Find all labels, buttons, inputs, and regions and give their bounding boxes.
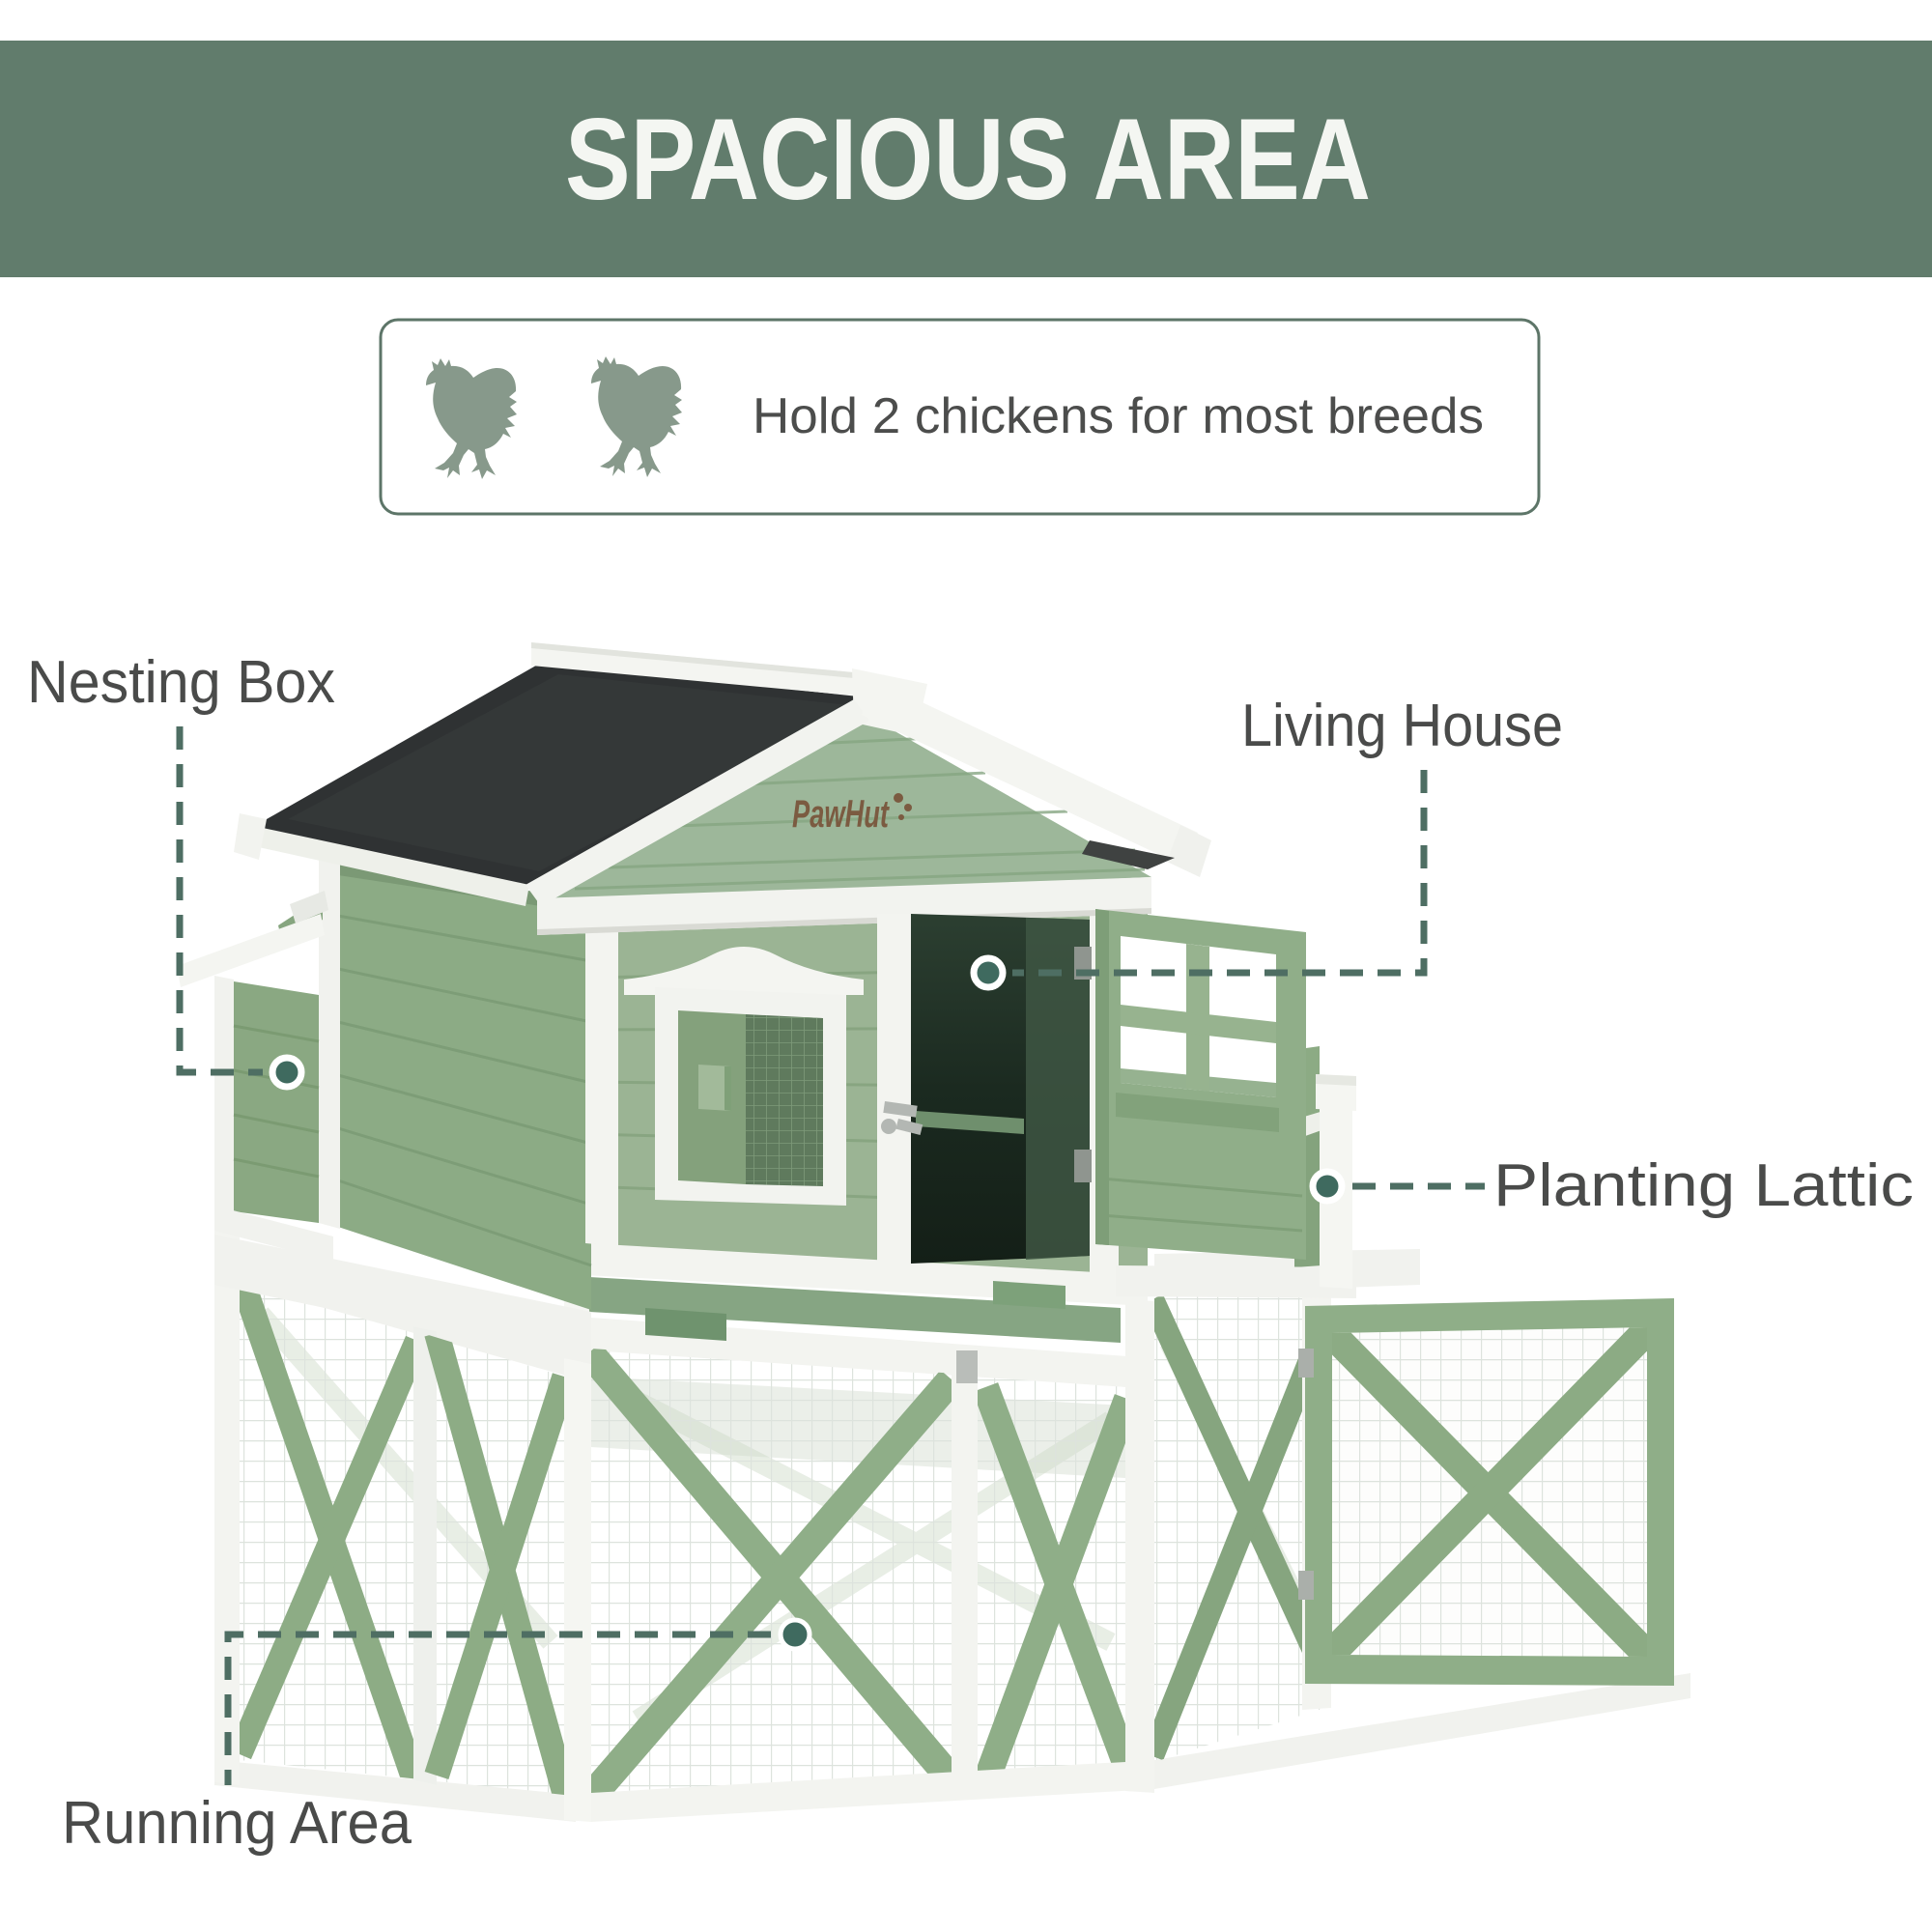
svg-text:Running Area: Running Area [62,1790,412,1857]
svg-text:Hold 2 chickens for most breed: Hold 2 chickens for most breeds [753,388,1484,444]
svg-text:Nesting Box: Nesting Box [27,649,335,716]
svg-text:Living House: Living House [1241,693,1563,759]
svg-text:PawHut: PawHut [792,793,890,836]
svg-text:Planting Lattic: Planting Lattic [1493,1152,1914,1219]
svg-text:SPACIOUS AREA: SPACIOUS AREA [565,95,1371,224]
